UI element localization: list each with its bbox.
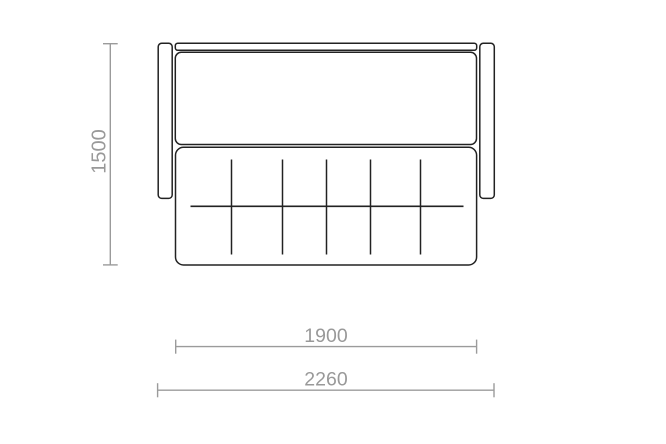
svg-text:1500: 1500 [89, 129, 111, 174]
svg-text:2260: 2260 [304, 369, 348, 391]
svg-text:1900: 1900 [304, 325, 348, 347]
